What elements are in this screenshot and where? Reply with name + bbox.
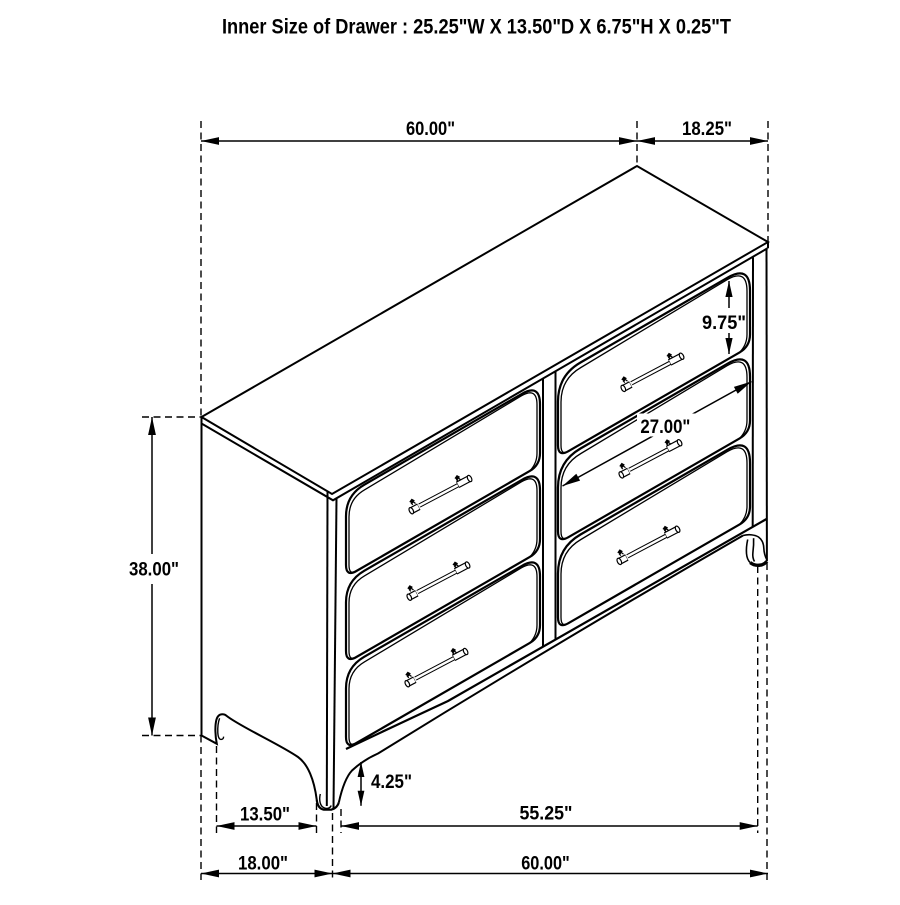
svg-text:27.00": 27.00" — [640, 416, 690, 438]
svg-text:13.50": 13.50" — [240, 804, 290, 826]
svg-text:55.25": 55.25" — [520, 802, 573, 824]
svg-text:38.00": 38.00" — [129, 559, 179, 581]
svg-text:4.25": 4.25" — [371, 771, 412, 793]
svg-text:18.00": 18.00" — [238, 852, 288, 874]
svg-text:9.75": 9.75" — [702, 312, 746, 334]
svg-text:60.00": 60.00" — [406, 118, 455, 140]
svg-text:18.25": 18.25" — [682, 118, 732, 140]
svg-text:Inner Size of Drawer : 25.25"W: Inner Size of Drawer : 25.25"W X 13.50"D… — [222, 16, 731, 39]
svg-text:60.00": 60.00" — [521, 853, 570, 875]
